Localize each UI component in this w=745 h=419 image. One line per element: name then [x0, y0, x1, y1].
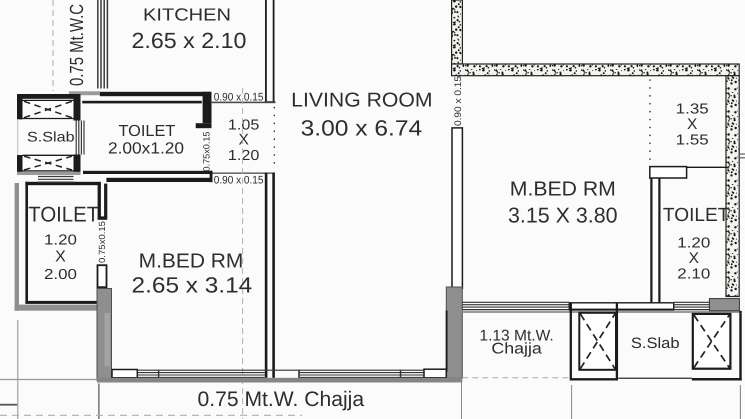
svg-text:Chajja: Chajja: [491, 341, 542, 358]
svg-text:TOILET: TOILET: [28, 203, 99, 227]
svg-text:0.90 x 0.15: 0.90 x 0.15: [214, 175, 264, 187]
svg-text:2.00: 2.00: [44, 267, 77, 283]
svg-text:X: X: [687, 116, 698, 133]
svg-text:1.55: 1.55: [676, 133, 709, 149]
svg-text:0.75 Mt.W.C: 0.75 Mt.W.C: [67, 4, 88, 86]
svg-text:1.20: 1.20: [44, 232, 77, 248]
svg-text:S.Slab: S.Slab: [631, 335, 680, 352]
svg-text:M.BED RM: M.BED RM: [139, 250, 244, 272]
svg-text:KITCHEN: KITCHEN: [143, 5, 231, 25]
svg-text:0.75x0.15: 0.75x0.15: [201, 132, 211, 172]
svg-text:3.00 x 6.74: 3.00 x 6.74: [301, 116, 423, 141]
svg-text:3.15 X 3.80: 3.15 X 3.80: [508, 204, 618, 228]
svg-text:TOILET: TOILET: [663, 205, 730, 226]
svg-text:TOILET: TOILET: [119, 123, 176, 140]
svg-text:2.00x1.20: 2.00x1.20: [108, 139, 184, 157]
svg-text:1.20: 1.20: [228, 148, 260, 164]
svg-text:2.65 x 2.10: 2.65 x 2.10: [132, 28, 247, 53]
svg-text:0.75 Mt.W. Chajja: 0.75 Mt.W. Chajja: [198, 388, 365, 411]
svg-text:1.35: 1.35: [676, 101, 709, 117]
svg-text:0.75x0.15: 0.75x0.15: [97, 221, 107, 263]
svg-text:X: X: [239, 132, 250, 149]
svg-text:LIVING ROOM: LIVING ROOM: [291, 90, 432, 112]
svg-text:X: X: [55, 248, 66, 265]
svg-text:S.Slab: S.Slab: [27, 129, 75, 145]
svg-text:2.65 x 3.14: 2.65 x 3.14: [132, 273, 253, 298]
svg-text:X: X: [689, 250, 700, 267]
svg-text:0.90 x 0.15: 0.90 x 0.15: [214, 92, 264, 104]
svg-text:2.10: 2.10: [677, 266, 710, 282]
svg-text:M.BED RM: M.BED RM: [510, 179, 616, 201]
svg-text:0.90 x 0.15: 0.90 x 0.15: [453, 76, 464, 126]
